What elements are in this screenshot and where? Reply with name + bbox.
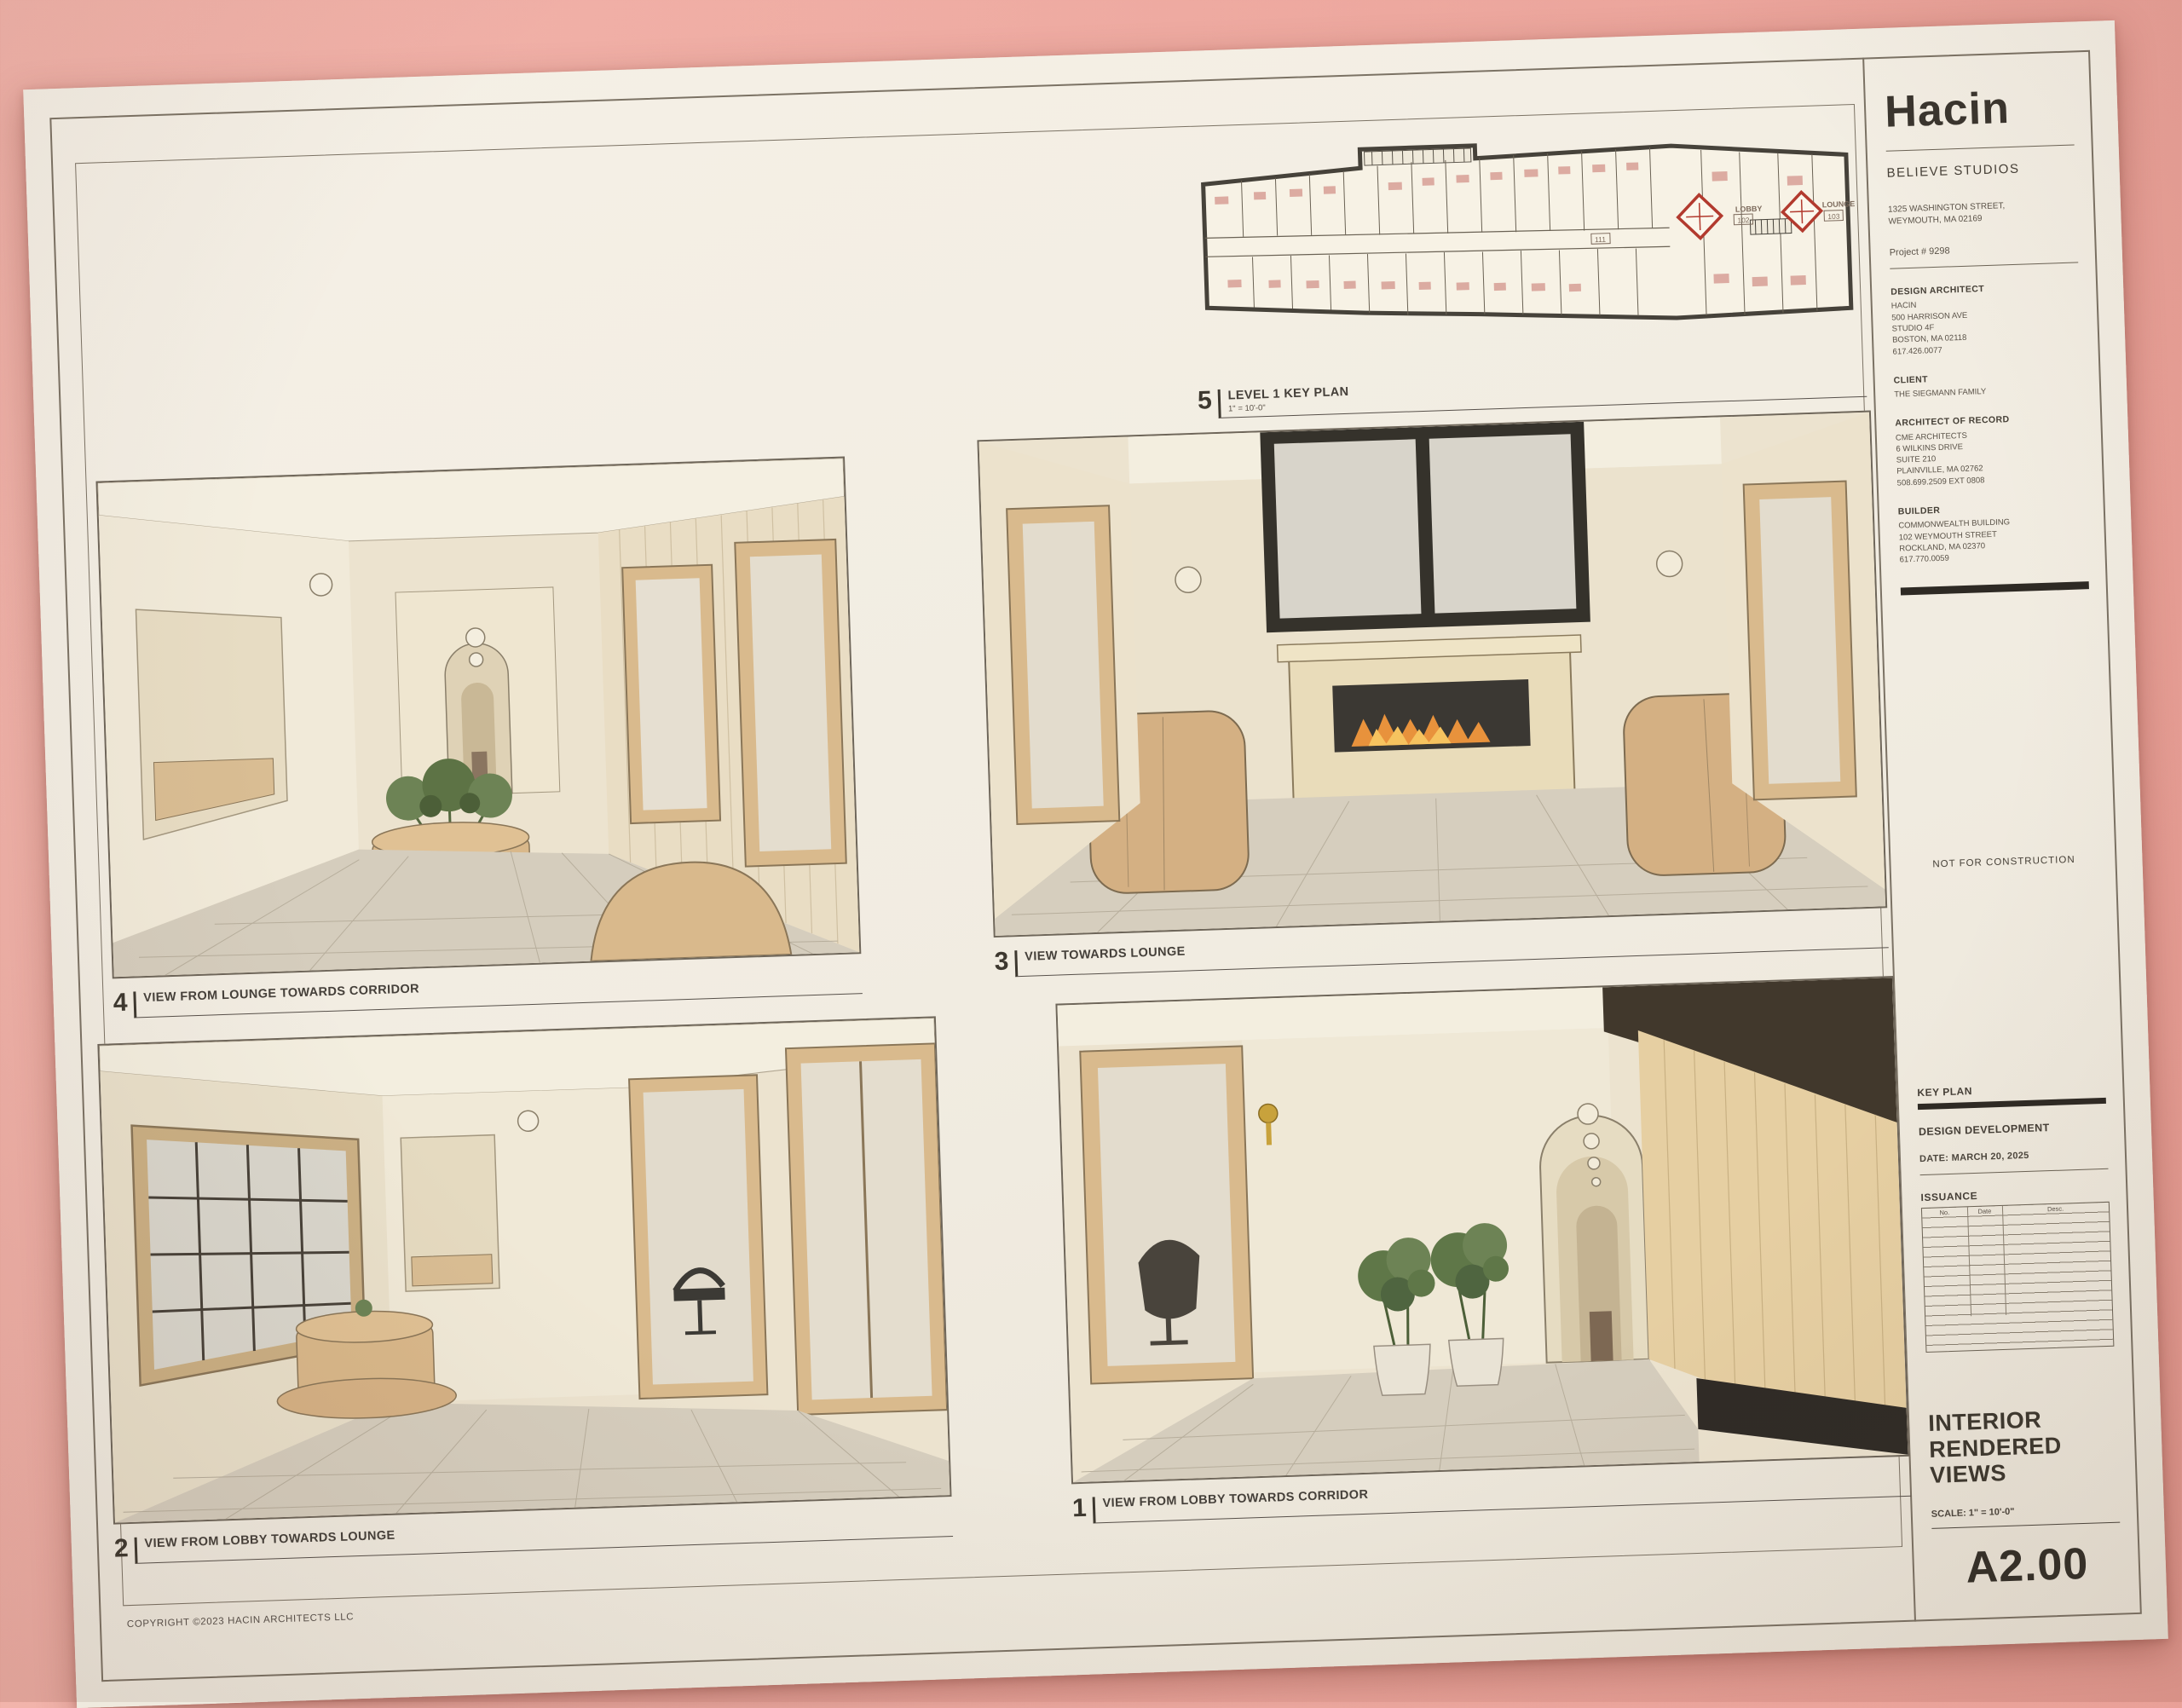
view-towards-lounge-rendering <box>977 411 1887 938</box>
lobby-stair-hatch <box>1750 219 1792 235</box>
key-plan-heading: KEY PLAN <box>1917 1080 2105 1100</box>
project-address: 1325 WASHINGTON STREET, WEYMOUTH, MA 021… <box>1888 199 2077 228</box>
project-name: BELIEVE STUDIOS <box>1886 159 2075 183</box>
sheet-title: INTERIOR RENDERED VIEWS <box>1928 1405 2119 1488</box>
view-number: 5 <box>1198 389 1213 412</box>
lounge-room-number: 103 <box>1827 212 1840 221</box>
divider <box>1920 1168 2109 1175</box>
rendering-view-1: 1 VIEW FROM LOBBY TOWARDS CORRIDOR <box>1055 976 1911 1524</box>
large-window <box>1260 422 1590 632</box>
wall-sconce <box>1175 567 1202 593</box>
issuance-table-header: No. Date Desc. <box>1922 1203 2109 1218</box>
view-from-lobby-towards-corridor-rendering <box>1055 976 1909 1484</box>
lounge-room-label: LOUNGE <box>1822 199 1856 209</box>
sheet-number: A2.00 <box>1932 1532 2122 1598</box>
door-glass <box>636 578 707 810</box>
sheet-scale: SCALE: 1" = 10'-0" <box>1931 1503 2120 1521</box>
rendering-view-4: 4 VIEW FROM LOUNGE TOWARDS CORRIDOR <box>95 457 862 1019</box>
issuance-heading: ISSUANCE <box>1920 1185 2109 1205</box>
pendant-light <box>469 653 483 667</box>
phase-label: DESIGN DEVELOPMENT <box>1919 1119 2107 1140</box>
arched-corridor <box>1538 1114 1648 1363</box>
view-from-lobby-towards-lounge-rendering <box>97 1016 951 1524</box>
rendering-view-2: 2 VIEW FROM LOBBY TOWARDS LOUNGE <box>97 1016 953 1564</box>
not-for-construction-stamp: NOT FOR CONSTRUCTION <box>1890 852 2116 873</box>
photo-of-drawing-on-wall: { "titleblock": { "logo": "Hacin", "stud… <box>0 0 2182 1702</box>
view-number: 1 <box>1072 1497 1088 1520</box>
title-block-divider-bar <box>1901 582 2089 596</box>
divider <box>1931 1521 2120 1528</box>
issuance-column-line <box>2002 1206 2006 1315</box>
far-door <box>1590 1311 1613 1361</box>
lobby-room-number: 102 <box>1737 216 1750 224</box>
view-number: 2 <box>114 1538 130 1560</box>
date-label: DATE: MARCH 20, 2025 <box>1919 1147 2108 1166</box>
wall-sconce <box>1656 551 1683 577</box>
paper-sheet: Hacin BELIEVE STUDIOS 1325 WASHINGTON ST… <box>23 20 2168 1708</box>
key-plan-underline-bar <box>1918 1098 2106 1110</box>
project-number: Project # 9298 <box>1890 241 2078 260</box>
stair-hatch <box>1364 148 1470 165</box>
bench-seat <box>412 1255 493 1286</box>
door-glass <box>1023 522 1104 809</box>
design-architect-info: HACIN 500 HARRISON AVE STUDIO 4F BOSTON,… <box>1891 295 2081 358</box>
level-1-key-plan-drawing: LOBBY 102 LOUNGE 103 111 <box>1188 107 1860 347</box>
rendering-view-3: 3 VIEW TOWARDS LOUNGE <box>977 411 1888 978</box>
door-glass <box>1759 497 1840 784</box>
title-block-top: Hacin BELIEVE STUDIOS 1325 WASHINGTON ST… <box>1864 50 2108 597</box>
architect-of-record-info: CME ARCHITECTS 6 WILKINS DRIVE SUITE 210… <box>1896 426 2086 489</box>
view-number: 4 <box>113 992 128 1014</box>
title-block-bottom: KEY PLAN DESIGN DEVELOPMENT DATE: MARCH … <box>1898 1079 2142 1621</box>
door-glass <box>750 554 831 851</box>
lobby-room-label: LOBBY <box>1735 205 1763 214</box>
wall-sconce <box>309 574 332 597</box>
builder-info: COMMONWEALTH BUILDING 102 WEYMOUTH STREE… <box>1898 514 2088 565</box>
wall-sconce <box>517 1111 539 1132</box>
issuance-table: No. Date Desc. <box>1921 1202 2115 1353</box>
divider <box>1886 145 2075 152</box>
door-glass <box>644 1089 753 1385</box>
pendant-light <box>465 628 485 648</box>
divider <box>1890 263 2078 269</box>
issuance-column-line <box>1966 1207 1971 1316</box>
view-number: 3 <box>994 950 1009 972</box>
firm-logo: Hacin <box>1884 77 2074 142</box>
view-from-lounge-towards-corridor-rendering <box>95 457 861 979</box>
key-plan-view: LOBBY 102 LOUNGE 103 111 5 LEVEL 1 KEY P… <box>1188 107 1867 419</box>
corridor-room-number: 111 <box>1595 235 1607 244</box>
